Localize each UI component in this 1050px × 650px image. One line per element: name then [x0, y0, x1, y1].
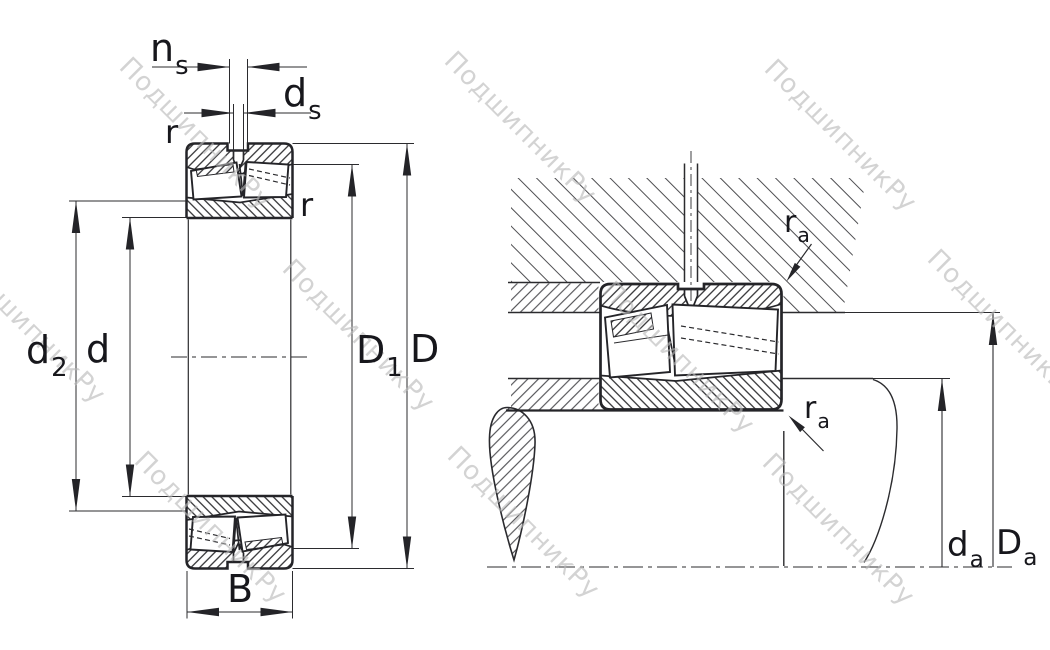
label-outer-diameter-D: D [410, 330, 439, 368]
drawing-canvas: ПодшипникРу ПодшипникРу ПодшипникРу Подш… [0, 0, 1050, 650]
label-hole-diameter-ds: ds [283, 74, 321, 120]
right-view-mounting [487, 151, 1012, 567]
label-groove-outer-diameter-D1: D1 [356, 331, 402, 377]
label-width-B: B [227, 570, 253, 608]
watermark: ПодшипникРу [921, 244, 1050, 409]
label-bore-diameter-d: d [86, 330, 110, 368]
abutment-extension-lines [845, 313, 1000, 379]
label-shaft-abutment-da: da [947, 528, 983, 569]
shaft-sleeve-hatch [511, 379, 599, 410]
label-fillet-ra-shaft: ra [804, 394, 829, 428]
label-housing-abutment-Da: Da [996, 526, 1036, 567]
label-recess-diameter-d2: d2 [26, 331, 67, 377]
label-chamfer-r-top: r [165, 116, 178, 148]
label-fillet-ra-housing: ra [784, 208, 809, 242]
housing-cover-hatch [511, 284, 599, 313]
watermark: ПодшипникРу [756, 448, 921, 613]
label-chamfer-r-inner: r [300, 189, 313, 221]
watermarks: ПодшипникРу ПодшипникРу ПодшипникРу Подш… [0, 46, 1050, 613]
label-groove-width-ns: ns [150, 29, 188, 75]
bearing-technical-drawing: ПодшипникРу ПодшипникРу ПодшипникРу Подш… [0, 0, 1050, 650]
